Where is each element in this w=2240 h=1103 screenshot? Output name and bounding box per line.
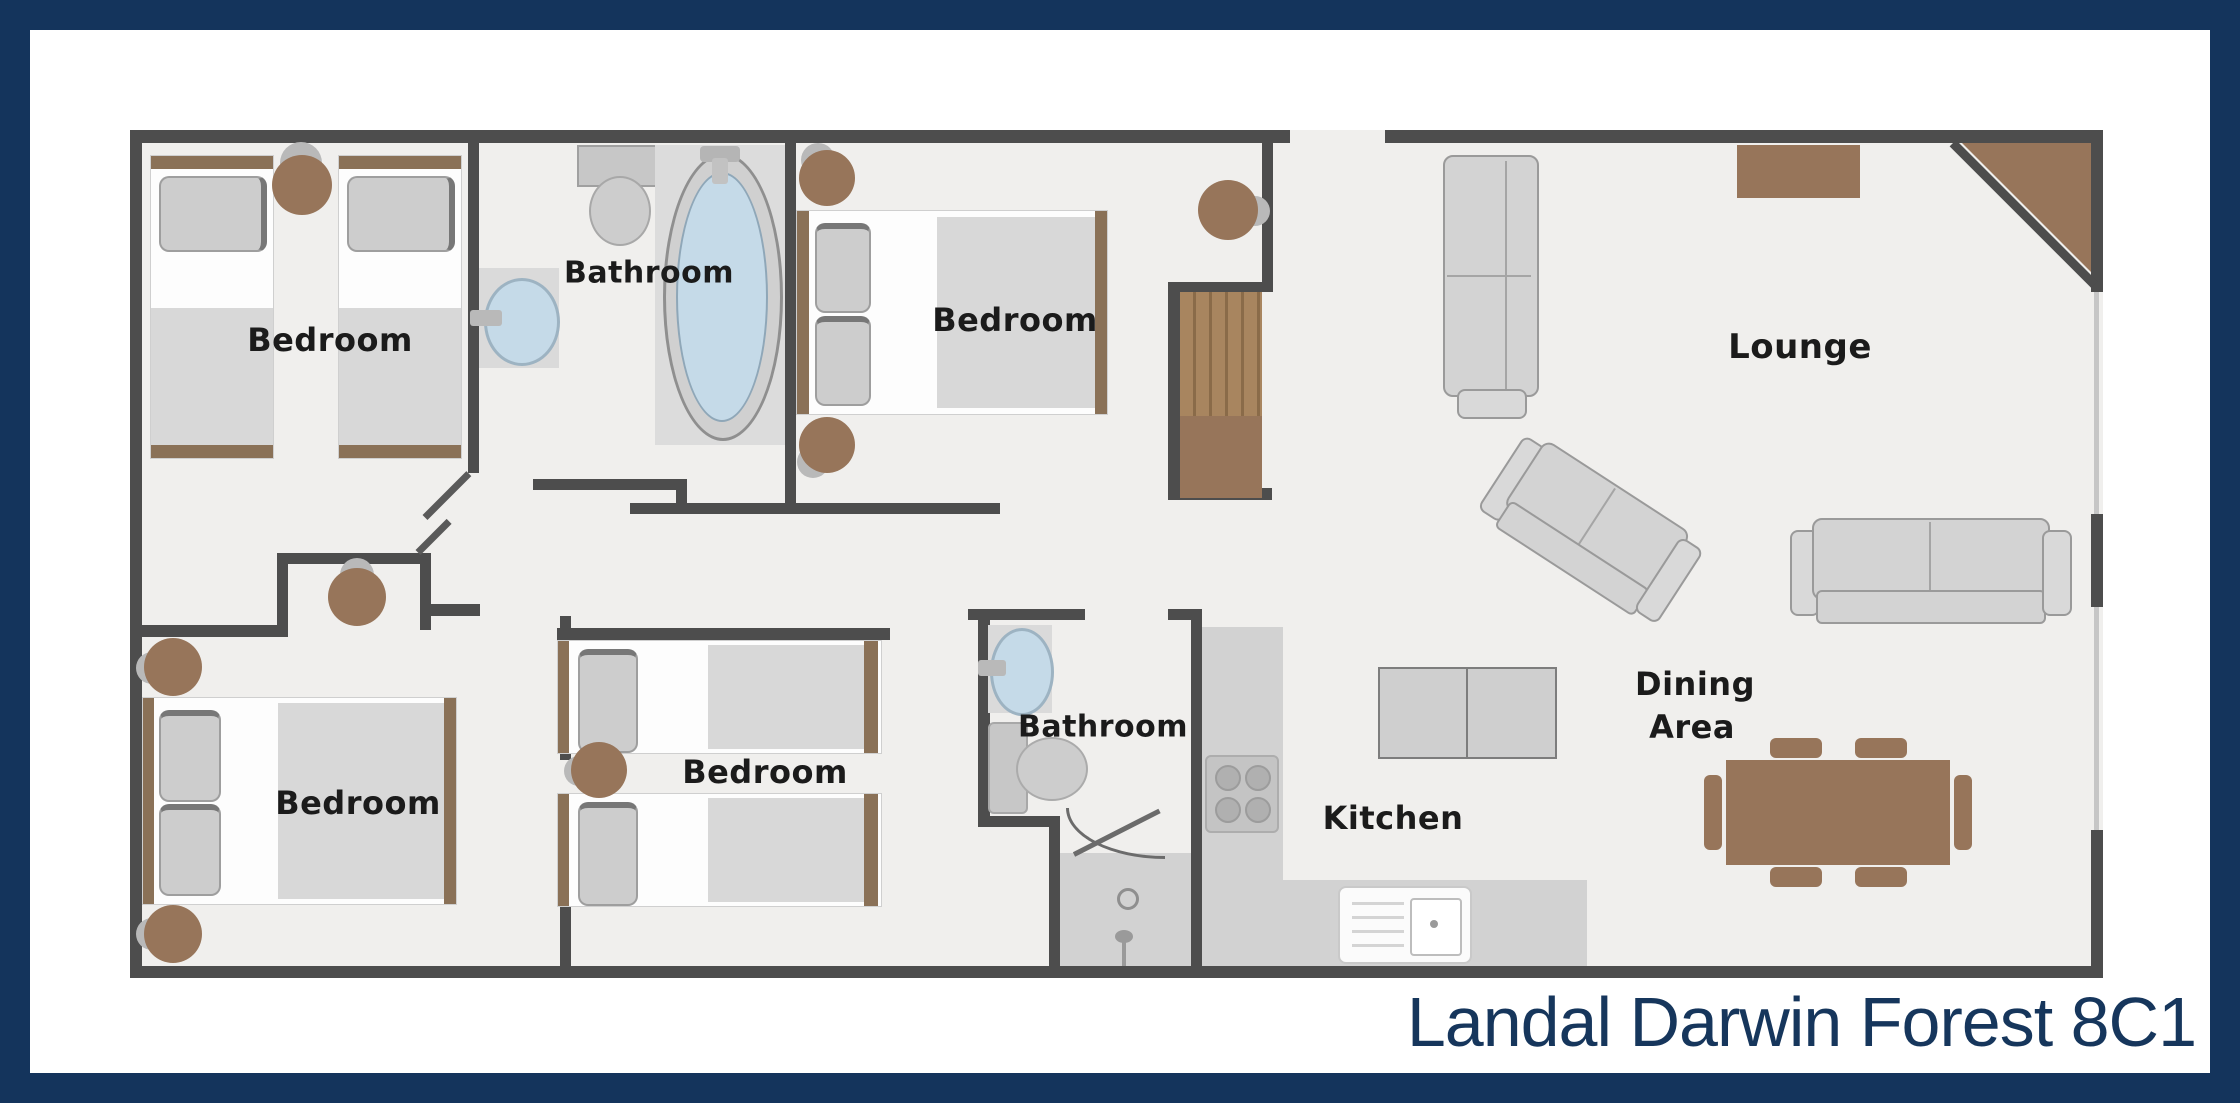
- wall-segment: [1049, 816, 1060, 966]
- dining-chair: [1770, 738, 1822, 758]
- wall-segment: [468, 143, 479, 473]
- kitchen-counter: [1202, 627, 1283, 880]
- wall-segment: [1168, 609, 1202, 620]
- frame-bottom: [0, 1073, 2240, 1103]
- faucet-icon: [978, 660, 1006, 676]
- wall-segment: [533, 479, 687, 490]
- sofa: [1790, 518, 2068, 624]
- wall-segment: [978, 816, 1060, 827]
- wall-segment: [630, 503, 1000, 514]
- room-label-bedroom-top-left: Bedroom: [247, 321, 413, 359]
- wall-segment: [785, 143, 796, 514]
- wall-segment: [2091, 830, 2103, 978]
- wall-segment: [130, 130, 1290, 143]
- room-label-bedroom-bottom-left: Bedroom: [275, 784, 441, 822]
- faucet-icon: [712, 158, 728, 184]
- twin-bed: [338, 155, 462, 459]
- room-label-dining-line1: Dining: [1635, 665, 1755, 703]
- shower-drain-icon: [1117, 888, 1139, 910]
- wall-segment: [130, 130, 142, 978]
- nightstand-lamp: [144, 638, 202, 696]
- frame-left: [0, 0, 30, 1103]
- window: [2094, 292, 2099, 514]
- tv-unit: [1737, 145, 1860, 198]
- room-label-bedroom-bottom-middle: Bedroom: [682, 753, 848, 791]
- twin-bed: [150, 155, 274, 459]
- wall-segment: [1168, 282, 1270, 292]
- wall-segment: [420, 553, 431, 630]
- single-bed: [557, 640, 882, 754]
- plan-title: Landal Darwin Forest 8C1: [1407, 982, 2196, 1062]
- kitchen-sink: [1338, 886, 1472, 964]
- nightstand-lamp: [799, 150, 855, 206]
- single-bed: [557, 793, 882, 907]
- room-label-kitchen: Kitchen: [1323, 799, 1464, 837]
- faucet-icon: [470, 310, 502, 326]
- nightstand-lamp: [571, 742, 627, 798]
- wall-segment: [431, 604, 480, 616]
- toilet: [589, 176, 651, 246]
- wall-segment: [277, 553, 288, 637]
- wall-segment: [130, 966, 2103, 978]
- room-label-bathroom-top: Bathroom: [564, 256, 734, 291]
- wall-segment: [968, 609, 1085, 620]
- window: [2094, 607, 2099, 830]
- nightstand-lamp: [799, 417, 855, 473]
- hall-table-lamp: [328, 568, 386, 626]
- room-label-bedroom-top-middle: Bedroom: [932, 301, 1098, 339]
- nightstand-lamp: [144, 905, 202, 963]
- shower-head-icon: [1122, 941, 1126, 966]
- dining-chair: [1855, 867, 1907, 887]
- bathtub: [676, 172, 768, 422]
- sofa: [1443, 155, 1539, 417]
- wall-segment: [2091, 514, 2103, 607]
- dining-chair: [1855, 738, 1907, 758]
- wall-segment: [1385, 130, 2103, 143]
- dining-chair: [1704, 775, 1722, 850]
- dining-table: [1726, 760, 1950, 865]
- dining-chair: [1954, 775, 1972, 850]
- floorplan-page: Bedroom Bathroom Bedroom Lounge: [0, 0, 2240, 1103]
- nightstand-lamp: [272, 155, 332, 215]
- toilet: [1016, 737, 1088, 801]
- frame-right: [2210, 0, 2240, 1103]
- frame-top: [0, 0, 2240, 30]
- room-label-dining-line2: Area: [1649, 708, 1735, 746]
- staircase: [1180, 416, 1262, 498]
- nightstand-lamp: [1198, 180, 1258, 240]
- wall-segment: [2091, 143, 2103, 292]
- room-label-bathroom-bottom: Bathroom: [1018, 710, 1188, 745]
- dining-chair: [1770, 867, 1822, 887]
- stove: [1205, 755, 1279, 833]
- wall-segment: [137, 625, 285, 637]
- staircase: [1180, 292, 1262, 416]
- wall-segment: [1191, 609, 1202, 966]
- wall-segment: [1168, 282, 1180, 500]
- kitchen-island: [1378, 667, 1557, 759]
- wall-segment: [557, 628, 890, 640]
- room-label-lounge: Lounge: [1728, 327, 1872, 367]
